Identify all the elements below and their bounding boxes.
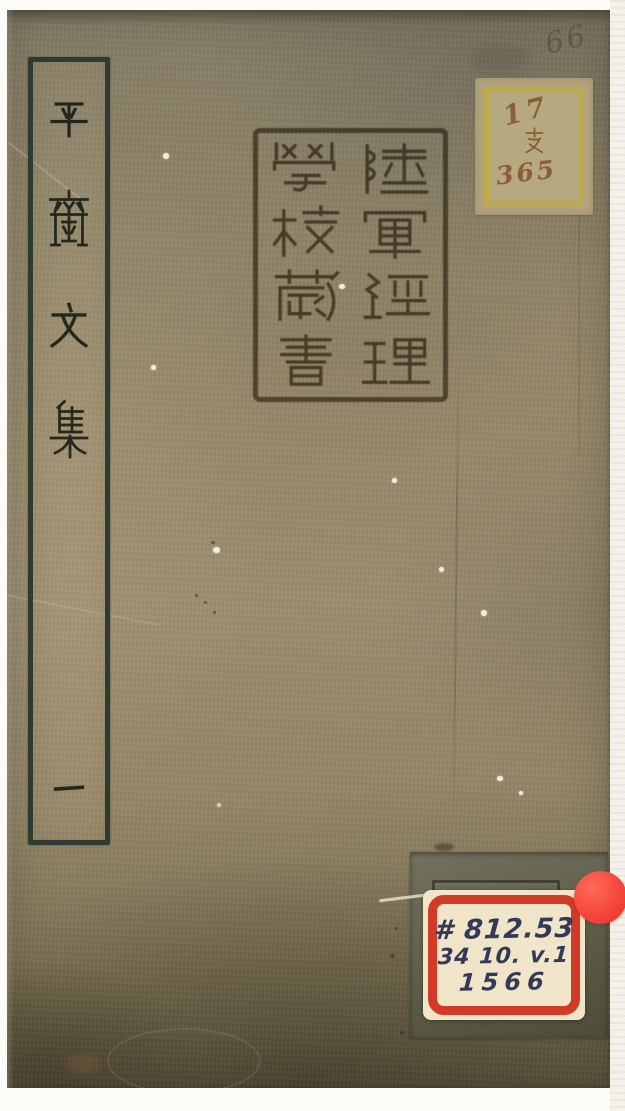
paper-speck xyxy=(519,791,523,795)
dark-speck xyxy=(213,611,216,614)
title-char-ji xyxy=(44,399,94,461)
paper-speck xyxy=(497,776,503,781)
library-seal xyxy=(253,128,448,402)
smudge-stain xyxy=(65,1054,101,1074)
handwritten-number: 66 xyxy=(542,18,591,61)
cover-top-shadow xyxy=(7,10,610,24)
seal-left-column xyxy=(262,139,351,391)
paper-speck xyxy=(163,153,169,159)
book-cover: 17 365 66 # 812.53 34 10. v.1 1566 xyxy=(7,10,610,1088)
dark-speck xyxy=(390,954,395,958)
call-number-line3: 1566 xyxy=(458,969,551,996)
title-label xyxy=(28,57,110,845)
title-char-ping xyxy=(46,93,92,139)
seal-char-cang xyxy=(269,268,343,326)
vertical-crease xyxy=(578,175,580,455)
seal-char-jun xyxy=(358,204,432,262)
paper-speck xyxy=(392,478,397,483)
scan-edge-strip xyxy=(610,0,625,1111)
red-dot-sticker xyxy=(574,871,625,924)
seal-char-jing xyxy=(358,268,432,326)
paper-speck xyxy=(439,567,444,572)
vertical-crease xyxy=(453,365,460,835)
smudge-stain xyxy=(469,46,529,72)
call-number-line2: 34 10. v.1 xyxy=(438,944,571,970)
seal-right-column xyxy=(351,139,440,391)
paper-speck xyxy=(217,803,221,807)
shelf-label: 17 365 xyxy=(475,78,593,215)
ring-stain xyxy=(107,1028,261,1088)
smudge-stain xyxy=(434,843,454,851)
seal-char-li xyxy=(358,333,432,391)
digitized-book-scan: { "page": { "description": "Photograph o… xyxy=(0,0,625,1111)
call-number-line1: # 812.53 xyxy=(433,913,576,945)
title-char-wen xyxy=(45,301,93,349)
dark-speck xyxy=(204,601,207,604)
paper-speck xyxy=(213,547,220,553)
call-number-red-border: # 812.53 34 10. v.1 1566 xyxy=(428,895,580,1015)
seal-char-lu xyxy=(358,139,432,197)
dark-speck xyxy=(211,541,215,544)
paper-speck xyxy=(151,365,156,370)
volume-char-yi xyxy=(51,780,87,796)
shelf-char-zhi xyxy=(518,124,550,156)
spine-edge-highlight xyxy=(7,10,14,1088)
call-number-label: # 812.53 34 10. v.1 1566 xyxy=(423,890,585,1020)
dark-speck xyxy=(195,594,198,597)
dark-speck xyxy=(395,927,398,930)
seal-char-xiao xyxy=(269,204,343,262)
seal-char-shu xyxy=(269,333,343,391)
seal-char-xue xyxy=(269,139,343,197)
title-char-zhai xyxy=(44,189,94,251)
dark-speck xyxy=(400,1031,404,1035)
paper-speck xyxy=(481,610,487,616)
